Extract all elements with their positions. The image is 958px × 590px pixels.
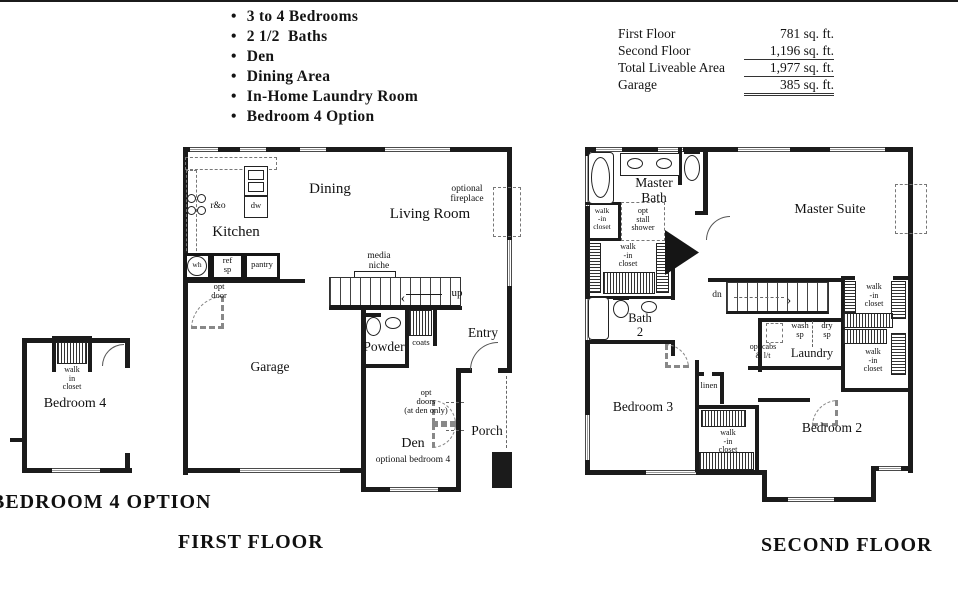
- closet-hanging-rod: [589, 243, 601, 293]
- laundry-tub-outline: [766, 323, 783, 343]
- wall: [841, 388, 913, 392]
- sink-icon: [656, 158, 672, 169]
- area-row: Total Liveable Area1,977 sq. ft.: [618, 60, 834, 77]
- feature-item: Bedroom 4 Option: [231, 108, 418, 126]
- wall: [893, 276, 913, 280]
- label-ref-space: ref sp: [211, 256, 244, 274]
- closet-hanging-rod: [603, 272, 655, 294]
- staircase-down: [726, 282, 829, 314]
- area-summary-table: First Floor781 sq. ft. Second Floor1,196…: [618, 26, 834, 96]
- area-row: Garage385 sq. ft.: [618, 77, 834, 94]
- front-door-swing: [470, 342, 498, 370]
- total-rule: [744, 95, 834, 96]
- label-linen: linen: [697, 381, 721, 390]
- label-walk-in-closet: walk -in closet: [857, 283, 891, 309]
- wall: [585, 340, 675, 344]
- fixture-outline: [248, 182, 264, 192]
- label-walk-in-closet: walk -in closet: [851, 348, 895, 374]
- feature-item: 3 to 4 Bedrooms: [231, 8, 418, 26]
- closet-hanging-rod: [843, 329, 887, 344]
- room-label-porch: Porch: [466, 424, 508, 439]
- fixture-outline: [248, 170, 264, 180]
- window: [879, 466, 901, 471]
- label-dry-space: dry sp: [815, 321, 839, 339]
- wall: [758, 398, 810, 402]
- label-dishwasher: dw: [244, 201, 268, 210]
- label-wash-space: wash sp: [788, 321, 812, 339]
- range-burner-icon: [187, 194, 196, 203]
- bathtub-icon: [588, 297, 609, 340]
- dashed-line: [734, 297, 784, 298]
- room-label-bedroom2: Bedroom 2: [796, 421, 868, 436]
- label-water-heater: wh: [187, 261, 207, 269]
- area-label: Total Liveable Area: [618, 60, 725, 77]
- closet-hanging-rod: [701, 410, 746, 427]
- area-value: 781 sq. ft.: [744, 26, 834, 43]
- room-label-kitchen: Kitchen: [200, 224, 272, 240]
- room-label-living-room: Living Room: [384, 206, 476, 222]
- wall: [125, 338, 130, 368]
- wall: [695, 211, 707, 215]
- label-media-niche: media niche: [356, 251, 402, 272]
- coats-closet-rod: [409, 310, 432, 336]
- window: [240, 468, 340, 473]
- floor-plan-sheet: { "features": { "items": [ "3 to 4 Bedro…: [0, 0, 958, 590]
- window: [738, 147, 790, 152]
- area-row: First Floor781 sq. ft.: [618, 26, 834, 43]
- label-opt-cabs: opt cabs & l/t: [744, 343, 782, 360]
- room-label-entry: Entry: [452, 326, 514, 341]
- label-opt-stall-shower: opt stall shower: [624, 207, 662, 233]
- wall: [871, 466, 876, 502]
- room-label-laundry: Laundry: [782, 347, 842, 361]
- toilet-icon: [366, 317, 381, 336]
- wall: [748, 366, 845, 370]
- label-optional-bedroom4: optional bedroom 4: [360, 455, 466, 465]
- window: [240, 147, 266, 152]
- area-label: Second Floor: [618, 43, 690, 60]
- label-up: up: [446, 288, 468, 300]
- area-value: 1,196 sq. ft.: [744, 43, 834, 60]
- label-walk-in-closet: walk in closet: [50, 366, 94, 392]
- closet-hanging-rod: [844, 281, 856, 313]
- area-value: 1,977 sq. ft.: [744, 60, 834, 77]
- window: [788, 497, 834, 502]
- window: [830, 147, 885, 152]
- area-label: First Floor: [618, 26, 675, 43]
- stair-arrow-line: [406, 294, 442, 295]
- room-label-bedroom4: Bedroom 4: [32, 396, 118, 411]
- bedroom4-option-caption: BEDROOM 4 OPTION: [0, 491, 211, 514]
- room-label-master-bath: Master Bath: [626, 176, 682, 205]
- optional-fireplace-outline: [895, 184, 927, 234]
- room-label-bedroom3: Bedroom 3: [606, 400, 680, 415]
- stair-up-arrow: [398, 289, 408, 299]
- wall: [183, 147, 512, 152]
- window: [52, 468, 100, 473]
- window: [190, 147, 218, 152]
- closet-hanging-rod: [891, 281, 906, 319]
- label-walk-in-closet: walk -in closet: [602, 243, 654, 269]
- area-row: Second Floor1,196 sq. ft.: [618, 43, 834, 60]
- wall: [361, 364, 409, 368]
- area-value: 385 sq. ft.: [744, 77, 834, 94]
- room-label-garage: Garage: [238, 360, 302, 375]
- sink-icon: [627, 158, 643, 169]
- dashed-line: [812, 321, 813, 347]
- label-dn: dn: [708, 290, 726, 300]
- room-label-dining: Dining: [298, 181, 362, 197]
- label-pantry: pantry: [244, 260, 280, 269]
- wall: [52, 336, 92, 340]
- window: [585, 415, 590, 460]
- feature-item: In-Home Laundry Room: [231, 88, 418, 106]
- angled-wall: [665, 230, 699, 275]
- label-walk-in-closet: walk -in closet: [586, 207, 618, 231]
- room-label-master-suite: Master Suite: [784, 202, 876, 217]
- second-floor-caption: SECOND FLOOR: [761, 534, 932, 557]
- room-label-bath2: Bath 2: [618, 312, 662, 339]
- sink-icon: [385, 317, 401, 329]
- bedroom4-door-swing: [102, 344, 124, 366]
- wall: [585, 238, 622, 241]
- label-optional-fireplace: optional fireplace: [440, 184, 494, 205]
- feature-item: 2 1/2 Baths: [231, 28, 418, 46]
- master-suite-door-swing: [706, 216, 730, 240]
- feature-item: Den: [231, 48, 418, 66]
- stair-down-arrow: [784, 291, 794, 301]
- wall: [22, 338, 27, 473]
- window: [507, 240, 512, 286]
- porch-pillar: [492, 452, 512, 488]
- label-opt-doors: opt doors (at den only): [396, 388, 456, 416]
- optional-fireplace-outline: [493, 187, 521, 237]
- feature-list: 3 to 4 Bedrooms 2 1/2 Baths Den Dining A…: [231, 8, 418, 128]
- label-range-oven: r&o: [205, 201, 231, 211]
- room-label-den: Den: [390, 436, 436, 451]
- wall: [10, 438, 23, 442]
- fixture-oval: [591, 157, 610, 198]
- bedroom3-door-swing: [665, 344, 689, 368]
- window: [390, 487, 438, 492]
- dashed-line: [446, 430, 464, 431]
- window: [646, 470, 696, 475]
- area-label: Garage: [618, 77, 657, 94]
- toilet-icon: [684, 155, 700, 181]
- wall: [755, 405, 759, 472]
- window: [300, 147, 326, 152]
- label-coats: coats: [406, 338, 436, 347]
- feature-item: Dining Area: [231, 68, 418, 86]
- closet-hanging-rod: [57, 342, 87, 364]
- first-floor-caption: FIRST FLOOR: [178, 531, 324, 554]
- staircase-up: [329, 277, 461, 308]
- closet-hanging-rod: [843, 313, 893, 328]
- wall: [712, 372, 724, 376]
- wall: [841, 276, 855, 280]
- garage-opt-door-swing: [191, 296, 224, 329]
- sheet-border-line: [0, 0, 958, 2]
- label-walk-in-closet: walk -in closet: [702, 429, 754, 455]
- room-label-powder: Powder: [356, 340, 412, 355]
- label-opt-door: opt door: [203, 282, 235, 300]
- wall: [684, 150, 700, 154]
- wall: [695, 405, 759, 409]
- window: [385, 147, 450, 152]
- wall: [703, 147, 708, 215]
- range-burner-icon: [187, 206, 196, 215]
